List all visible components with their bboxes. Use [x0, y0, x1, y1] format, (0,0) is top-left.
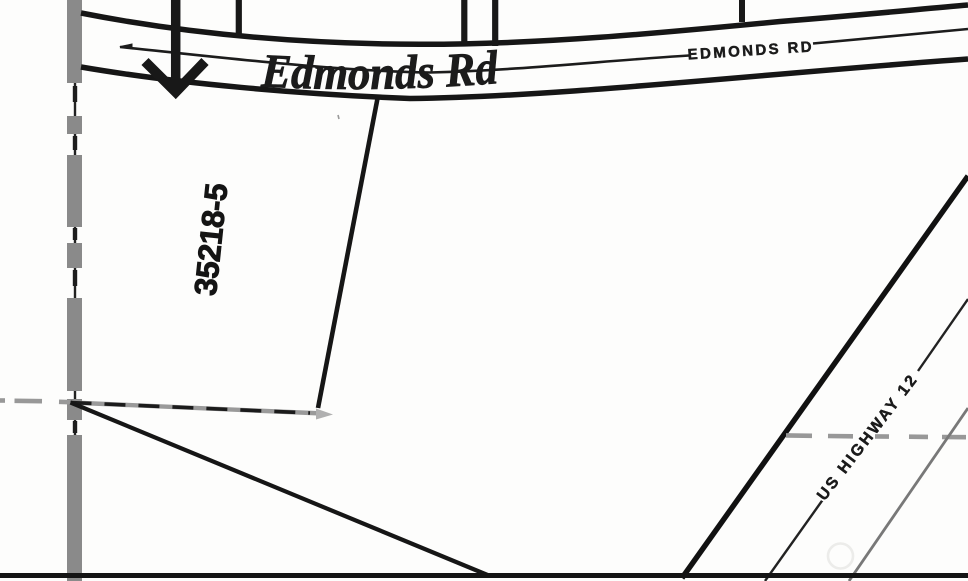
svg-text:Edmonds Rd: Edmonds Rd [259, 41, 500, 100]
